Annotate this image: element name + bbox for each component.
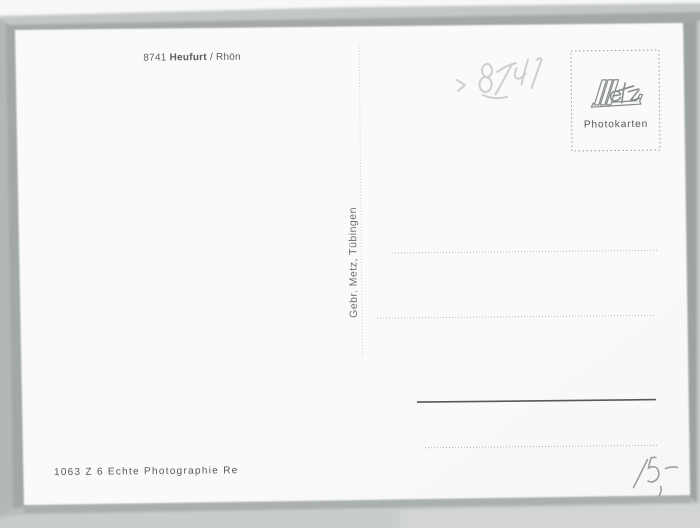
svg-text:Photokarten: Photokarten [584, 119, 648, 131]
svg-text:Gebr. Metz, Tübingen: Gebr. Metz, Tübingen [347, 207, 360, 318]
svg-text:1063 Z 6 Echte Photographie: 1063 Z 6 Echte Photographie Re [54, 465, 239, 478]
svg-text:8741 Heufurt / Rhön: 8741 Heufurt / Rhön [143, 52, 241, 64]
